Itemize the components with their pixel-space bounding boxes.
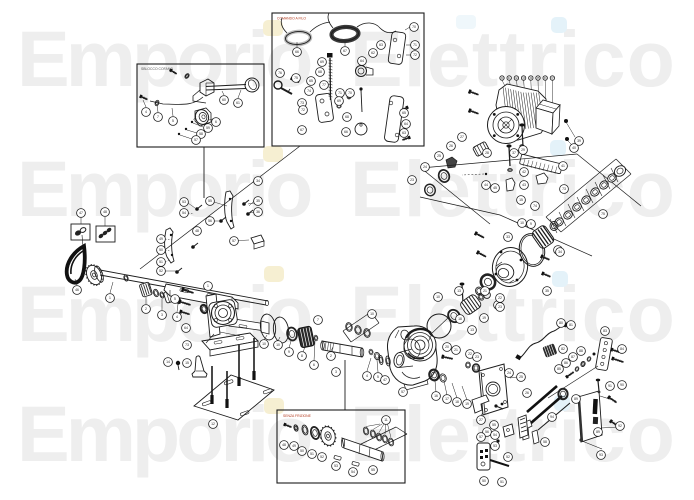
svg-text:50: 50 [159, 248, 163, 252]
svg-text:92: 92 [618, 424, 622, 428]
svg-text:74: 74 [533, 204, 537, 208]
svg-text:73: 73 [185, 343, 189, 347]
svg-text:24: 24 [423, 165, 427, 169]
svg-text:88: 88 [579, 349, 583, 353]
svg-text:19: 19 [465, 402, 469, 406]
svg-text:65: 65 [309, 79, 313, 83]
svg-text:SENZA FRIZIONE: SENZA FRIZIONE [283, 414, 312, 418]
svg-text:47: 47 [383, 378, 387, 382]
svg-text:76: 76 [278, 71, 282, 75]
svg-text:93: 93 [599, 453, 603, 457]
svg-text:50: 50 [482, 479, 486, 483]
svg-text:34: 34 [256, 179, 260, 183]
svg-text:67: 67 [343, 49, 347, 53]
svg-text:1: 1 [207, 284, 209, 288]
svg-text:10: 10 [262, 342, 266, 346]
svg-text:19: 19 [482, 316, 486, 320]
svg-text:14: 14 [166, 360, 170, 364]
svg-text:25: 25 [437, 154, 441, 158]
svg-text:72: 72 [413, 53, 417, 57]
svg-text:68: 68 [345, 115, 349, 119]
svg-text:5: 5 [172, 119, 174, 123]
svg-text:73: 73 [300, 101, 304, 105]
svg-text:52: 52 [320, 455, 324, 459]
svg-text:71: 71 [338, 91, 342, 95]
svg-text:60: 60 [222, 98, 226, 102]
svg-text:69: 69 [320, 60, 324, 64]
svg-text:66: 66 [295, 50, 299, 54]
svg-text:37: 37 [512, 151, 516, 155]
svg-text:9: 9 [288, 350, 290, 354]
svg-text:53: 53 [182, 200, 186, 204]
svg-text:10: 10 [276, 343, 280, 347]
svg-text:84: 84 [620, 347, 624, 351]
svg-text:46: 46 [75, 288, 79, 292]
svg-text:57: 57 [232, 239, 236, 243]
svg-text:67: 67 [300, 128, 304, 132]
svg-text:22: 22 [468, 352, 472, 356]
svg-text:54: 54 [182, 211, 186, 215]
svg-text:52: 52 [159, 269, 163, 273]
svg-text:62: 62 [371, 51, 375, 55]
svg-text:82: 82 [561, 347, 565, 351]
svg-text:36: 36 [256, 210, 260, 214]
svg-text:18: 18 [458, 317, 462, 321]
svg-text:35: 35 [256, 199, 260, 203]
svg-text:25: 25 [519, 375, 523, 379]
svg-text:40: 40 [572, 146, 576, 150]
svg-text:15: 15 [185, 361, 189, 365]
svg-text:4: 4 [366, 374, 368, 378]
svg-text:18: 18 [455, 400, 459, 404]
svg-text:64: 64 [404, 122, 408, 126]
svg-text:9: 9 [530, 222, 532, 226]
svg-text:71: 71 [413, 43, 417, 47]
svg-text:5: 5 [174, 297, 176, 301]
svg-text:64: 64 [360, 59, 364, 63]
svg-text:4: 4 [145, 110, 147, 114]
svg-text:44: 44 [484, 183, 488, 187]
svg-text:53: 53 [334, 464, 338, 468]
svg-text:13: 13 [470, 328, 474, 332]
svg-text:65: 65 [402, 111, 406, 115]
svg-text:75: 75 [601, 212, 605, 216]
svg-text:51: 51 [310, 452, 314, 456]
svg-text:5: 5 [377, 375, 379, 379]
svg-text:6: 6 [215, 120, 217, 124]
svg-text:23: 23 [475, 355, 479, 359]
svg-text:90: 90 [620, 383, 624, 387]
svg-text:13: 13 [457, 289, 461, 293]
svg-text:27: 27 [479, 418, 483, 422]
svg-text:39: 39 [577, 139, 581, 143]
svg-text:3: 3 [161, 313, 163, 317]
svg-text:57: 57 [479, 435, 483, 439]
svg-text:43: 43 [522, 183, 526, 187]
svg-text:86: 86 [564, 361, 568, 365]
svg-text:29: 29 [521, 148, 525, 152]
svg-text:89: 89 [596, 430, 600, 434]
svg-text:57: 57 [401, 390, 405, 394]
svg-text:63: 63 [402, 131, 406, 135]
svg-text:21: 21 [454, 348, 458, 352]
svg-text:10: 10 [520, 221, 524, 225]
svg-text:45: 45 [493, 186, 497, 190]
svg-text:11: 11 [384, 418, 388, 422]
svg-text:66: 66 [344, 130, 348, 134]
svg-text:52: 52 [506, 455, 510, 459]
svg-text:58: 58 [199, 132, 203, 136]
svg-text:42: 42 [522, 170, 526, 174]
svg-text:75: 75 [294, 76, 298, 80]
svg-text:56: 56 [485, 430, 489, 434]
svg-text:91: 91 [608, 384, 612, 388]
svg-text:27: 27 [460, 135, 464, 139]
svg-text:48: 48 [103, 210, 107, 214]
svg-text:54: 54 [351, 470, 355, 474]
svg-text:23: 23 [498, 305, 502, 309]
svg-text:49: 49 [159, 237, 163, 241]
svg-text:55: 55 [208, 199, 212, 203]
svg-text:47: 47 [79, 211, 83, 215]
svg-text:56: 56 [208, 219, 212, 223]
svg-text:64: 64 [184, 326, 188, 330]
svg-text:48: 48 [282, 443, 286, 447]
svg-text:74: 74 [307, 89, 311, 93]
svg-text:8: 8 [301, 354, 303, 358]
svg-text:63: 63 [379, 43, 383, 47]
svg-text:2: 2 [145, 307, 147, 311]
svg-text:41: 41 [561, 164, 565, 168]
svg-text:16: 16 [434, 394, 438, 398]
svg-text:48: 48 [195, 229, 199, 233]
svg-text:49: 49 [292, 444, 296, 448]
svg-text:26: 26 [525, 391, 529, 395]
svg-text:17: 17 [445, 397, 449, 401]
svg-text:61: 61 [236, 101, 240, 105]
svg-text:26: 26 [449, 144, 453, 148]
svg-text:15: 15 [519, 198, 523, 202]
svg-text:22: 22 [498, 296, 502, 300]
svg-text:51: 51 [500, 480, 504, 484]
svg-text:28: 28 [485, 151, 489, 155]
svg-text:54: 54 [493, 433, 497, 437]
svg-text:85: 85 [557, 367, 561, 371]
svg-text:4: 4 [176, 315, 178, 319]
svg-text:55: 55 [492, 423, 496, 427]
svg-text:33: 33 [506, 235, 510, 239]
svg-text:34: 34 [558, 250, 562, 254]
svg-text:81: 81 [569, 323, 573, 327]
svg-text:21: 21 [483, 289, 487, 293]
svg-text:7: 7 [157, 115, 159, 119]
svg-text:53: 53 [493, 444, 497, 448]
svg-text:50: 50 [300, 449, 304, 453]
svg-text:70: 70 [348, 91, 352, 95]
svg-text:SBLOCCO COFANO: SBLOCCO COFANO [141, 67, 173, 71]
svg-text:10: 10 [436, 295, 440, 299]
svg-text:94: 94 [550, 415, 554, 419]
svg-text:70: 70 [412, 25, 416, 29]
svg-text:55: 55 [371, 468, 375, 472]
svg-text:59: 59 [206, 126, 210, 130]
svg-text:6: 6 [313, 363, 315, 367]
svg-text:20: 20 [445, 345, 449, 349]
svg-text:83: 83 [603, 329, 607, 333]
svg-text:1: 1 [109, 296, 111, 300]
svg-text:68: 68 [318, 70, 322, 74]
svg-text:2: 2 [330, 354, 332, 358]
svg-text:73: 73 [562, 187, 566, 191]
svg-text:72: 72 [301, 108, 305, 112]
svg-text:57: 57 [194, 138, 198, 142]
svg-text:87: 87 [571, 355, 575, 359]
svg-text:3: 3 [335, 370, 337, 374]
svg-text:7: 7 [317, 318, 319, 322]
svg-text:69: 69 [337, 99, 341, 103]
svg-text:89: 89 [574, 397, 578, 401]
svg-text:77: 77 [322, 83, 326, 87]
svg-text:12: 12 [211, 422, 215, 426]
svg-text:58: 58 [543, 440, 547, 444]
svg-text:51: 51 [159, 260, 163, 264]
svg-text:35: 35 [545, 289, 549, 293]
svg-text:80: 80 [559, 321, 563, 325]
svg-text:10: 10 [370, 312, 374, 316]
svg-text:23: 23 [410, 178, 414, 182]
svg-text:24: 24 [507, 371, 511, 375]
